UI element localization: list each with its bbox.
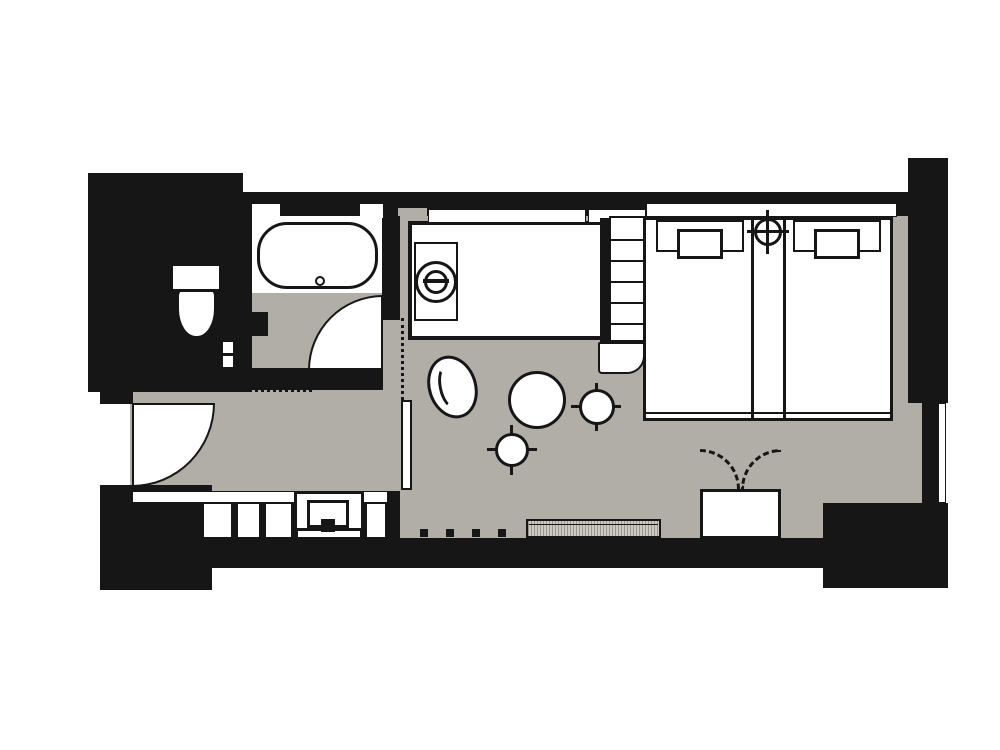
wall-right-pillar [908, 158, 948, 403]
window-bench [526, 519, 661, 538]
partition-dotted-line [401, 318, 404, 400]
pillow-right-inner [814, 229, 860, 259]
headboard-shelf [646, 203, 897, 217]
toilet-door-jamb-upper [222, 341, 234, 354]
ladder-rung [611, 260, 643, 262]
nightstand-cross-horizontal [747, 230, 789, 233]
window-bay-floor [908, 403, 922, 503]
toilet-door-jamb-lower [222, 355, 234, 368]
pillow-left-inner [677, 229, 723, 259]
tub-deck-notch-right [360, 204, 383, 218]
window-tick [498, 529, 506, 537]
wall-pier [250, 312, 268, 336]
toilet-tank-tab-left [162, 268, 170, 284]
wall-bottom-right-block [823, 503, 948, 588]
sink-faucet-bar [423, 279, 449, 283]
bed-divider-right [783, 217, 786, 421]
bed-divider-left [751, 217, 754, 421]
lounge-chair-back-line [434, 363, 465, 411]
closet-divider [231, 503, 238, 538]
wall-closet-cap [386, 491, 400, 538]
window-glazing [938, 403, 946, 503]
wall-window-mullion [922, 403, 938, 503]
window-bench-line [529, 524, 658, 525]
window-tick [472, 529, 480, 537]
shelf-ladder-side-bar [600, 218, 609, 345]
toilet-tank [170, 263, 222, 292]
wall-bottom [212, 538, 825, 568]
sliding-partition-panel [401, 400, 412, 490]
round-table [508, 371, 566, 429]
window-tick [446, 529, 454, 537]
shelf-ladder-end-unit [598, 342, 645, 374]
beds-foot-line [646, 412, 890, 414]
window-tick [420, 529, 428, 537]
ladder-rung [611, 281, 643, 283]
closet-divider [259, 503, 266, 538]
ladder-rung [611, 323, 643, 325]
wall-hall-south [250, 368, 383, 390]
toilet-tank-tab-right [222, 268, 230, 284]
floor-plan [0, 0, 1000, 750]
threshold-dotted-line [231, 389, 312, 392]
safe-handle [321, 519, 335, 532]
tub-deck-notch-left [252, 204, 280, 218]
bathtub-drain [315, 276, 325, 286]
stool-2 [579, 389, 615, 425]
counter-shelf-a [428, 209, 586, 223]
ladder-rung [611, 302, 643, 304]
wall-entry-step [100, 392, 133, 404]
wall-toilet-divider [234, 192, 252, 392]
shelf-ladder [609, 216, 645, 342]
floor-notch [398, 208, 427, 216]
ladder-rung [611, 239, 643, 241]
luggage-rack [700, 489, 781, 539]
stool-1 [495, 433, 529, 467]
